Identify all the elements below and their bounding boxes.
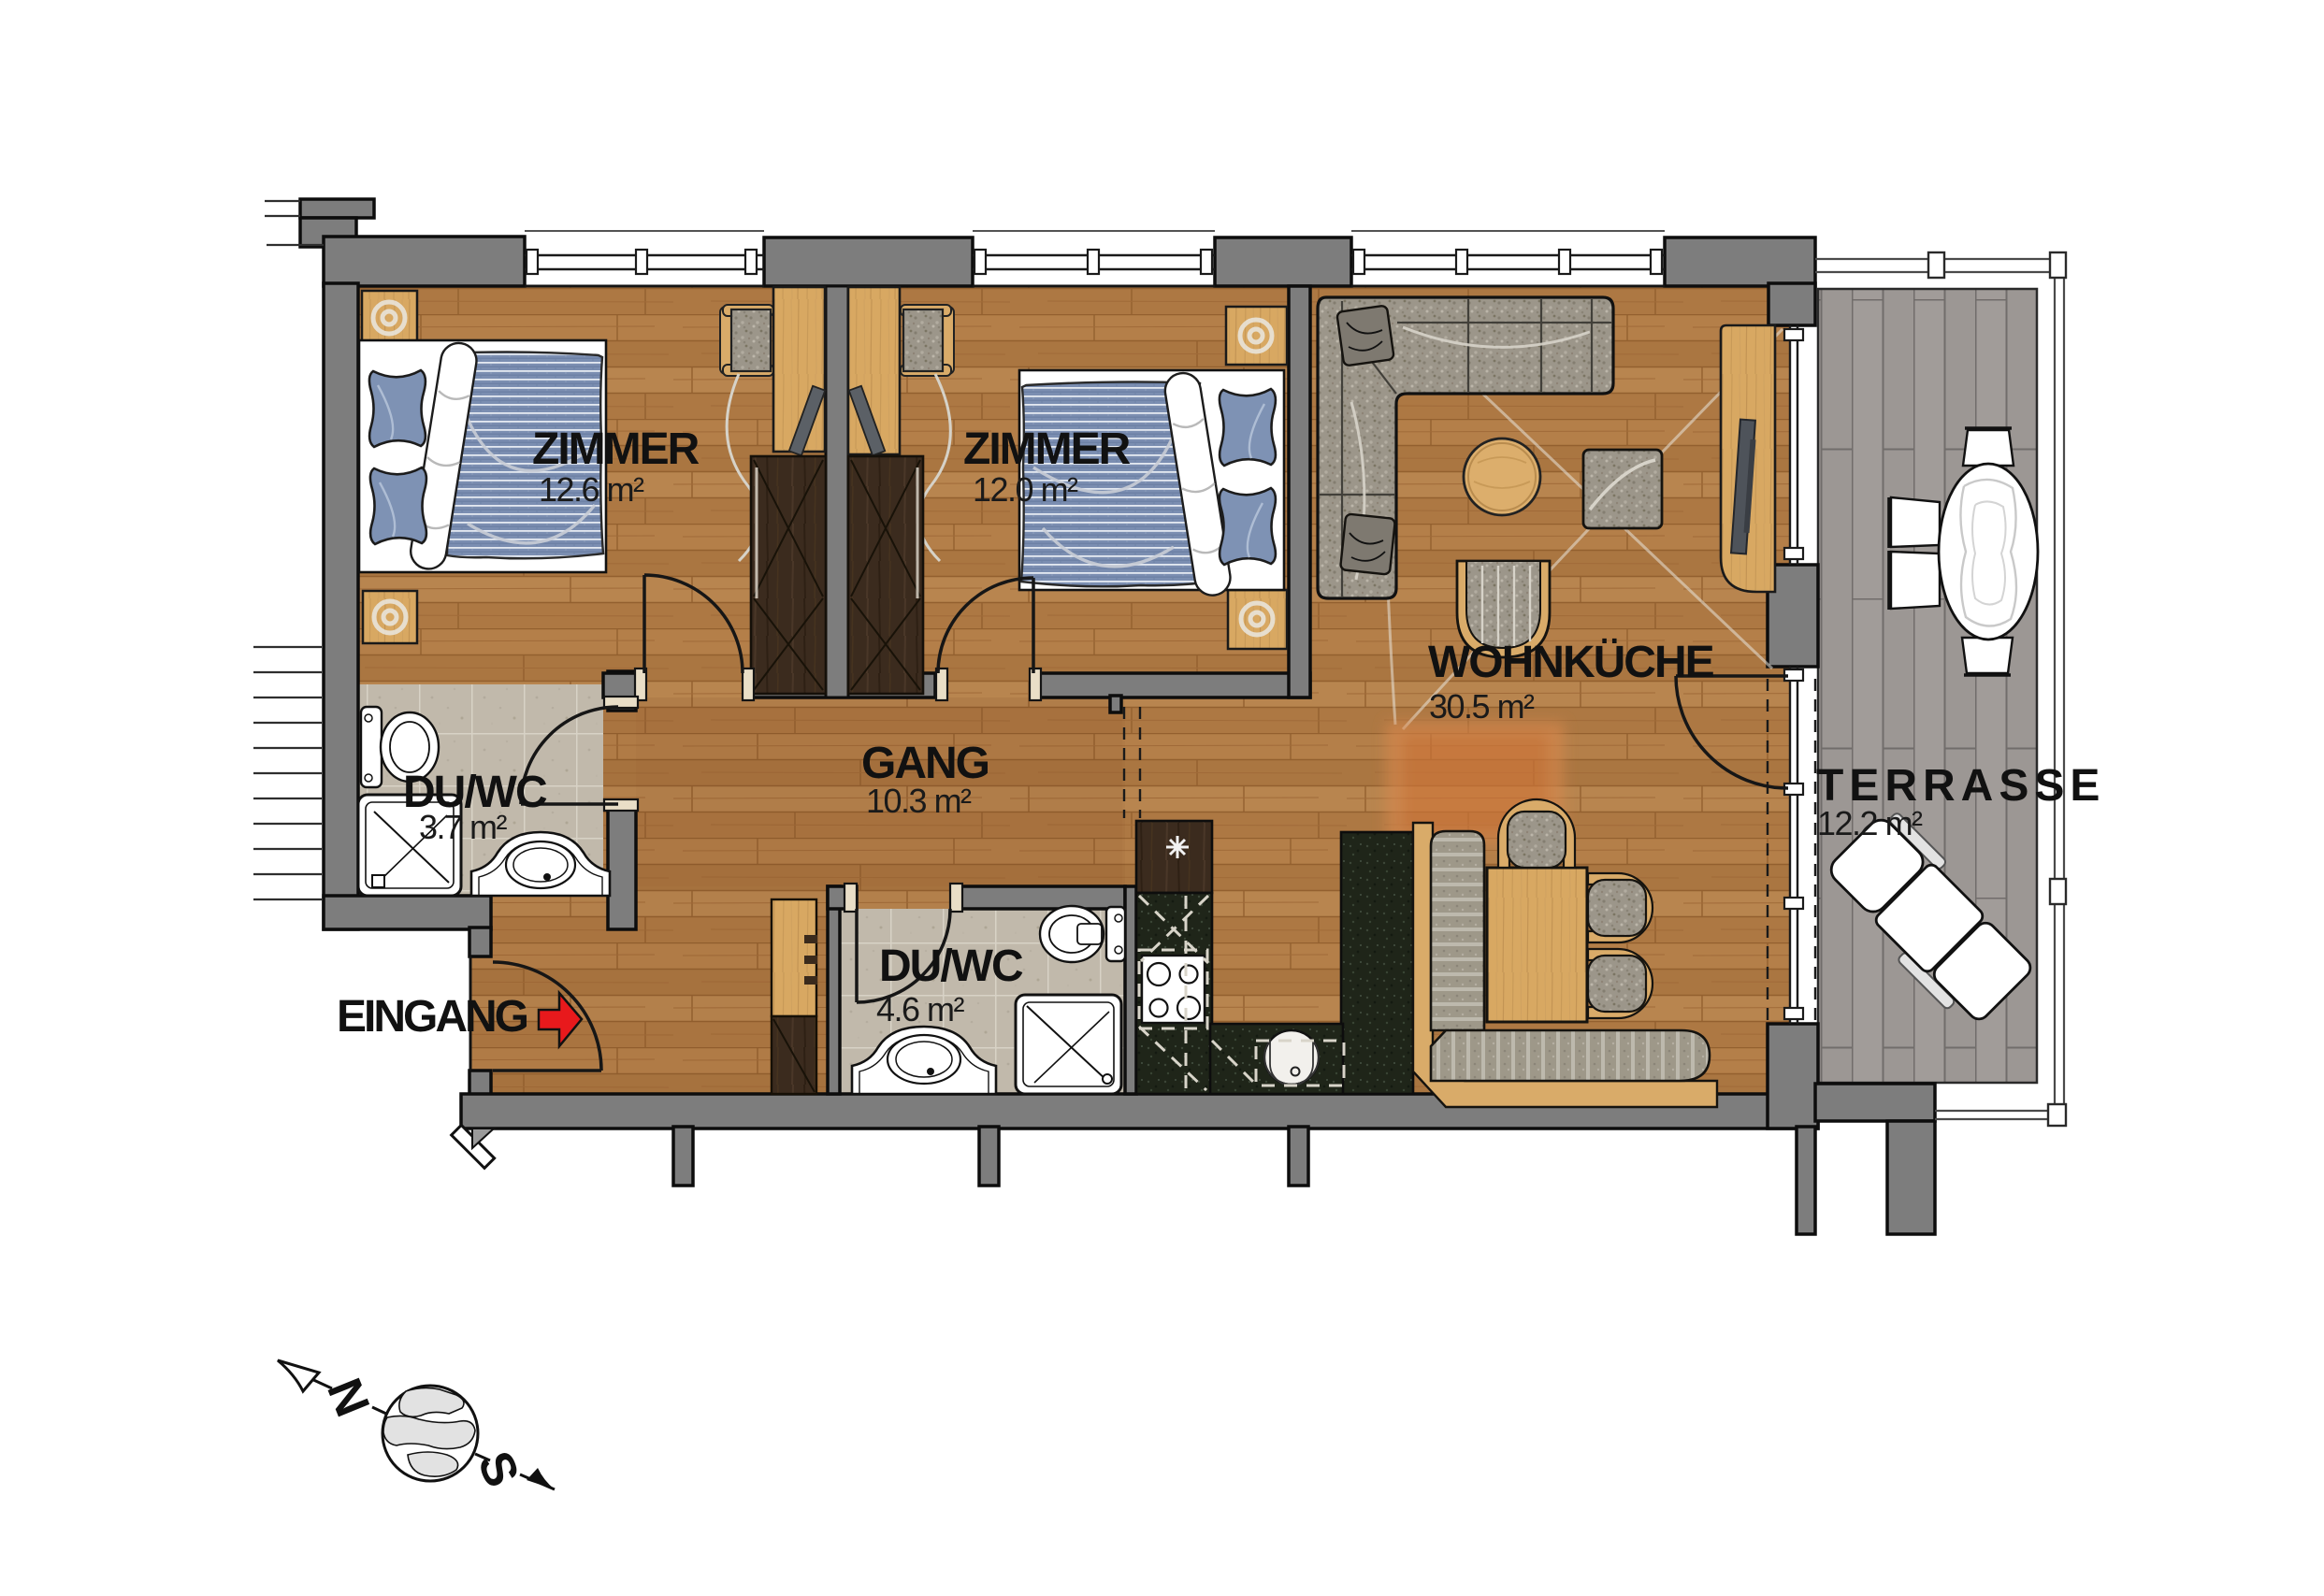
svg-text:ZIMMER: ZIMMER xyxy=(963,424,1131,474)
svg-text:12.6 m²: 12.6 m² xyxy=(539,470,644,509)
svg-text:WOHNKÜCHE: WOHNKÜCHE xyxy=(1428,638,1714,687)
svg-text:DU/WC: DU/WC xyxy=(879,942,1023,991)
svg-text:12.0 m²: 12.0 m² xyxy=(973,470,1078,509)
svg-text:EINGANG: EINGANG xyxy=(337,992,527,1042)
svg-text:3.7 m²: 3.7 m² xyxy=(419,808,508,846)
svg-text:10.3 m²: 10.3 m² xyxy=(866,782,972,820)
svg-text:ZIMMER: ZIMMER xyxy=(532,424,700,474)
svg-text:12.2 m²: 12.2 m² xyxy=(1817,804,1923,842)
svg-text:4.6 m²: 4.6 m² xyxy=(876,990,965,1028)
svg-text:30.5 m²: 30.5 m² xyxy=(1429,687,1535,726)
